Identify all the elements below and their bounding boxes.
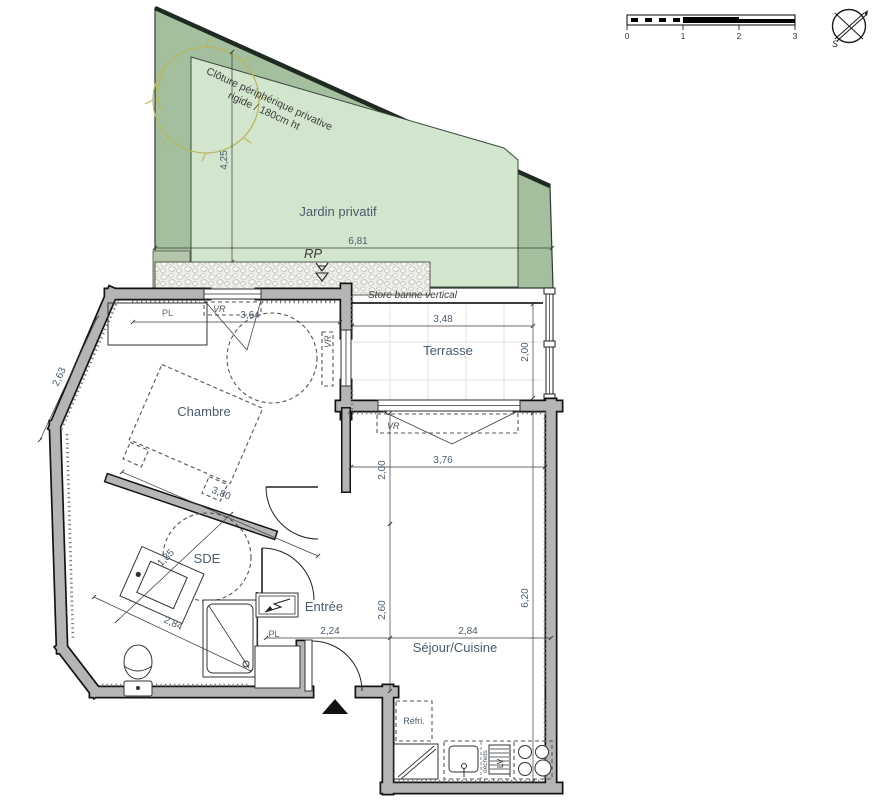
store-banne-note: Store banne vertical: [368, 290, 458, 301]
bedroom-wall-dim-line: [40, 318, 97, 440]
entrance-marker-triangle: [322, 699, 348, 714]
entry-width-dim: 2,24: [320, 626, 340, 637]
bedroom-diag-dim-line: [122, 472, 318, 556]
floor-plan-drawing: Clôture périphérique privative rigide / …: [0, 0, 879, 800]
waste-label: déchets: [482, 749, 489, 773]
entry-area: Entrée PL 2,60 2,24: [255, 524, 390, 691]
entry-label: Entrée: [305, 599, 343, 614]
toilet: [124, 645, 152, 696]
terrace-depth-dim: 2,00: [520, 342, 531, 362]
rp-label: RP: [304, 246, 322, 261]
scale-tick-1: 1: [681, 31, 686, 41]
terrace-width-dim: 3,48: [433, 314, 453, 325]
insulation-dots: [61, 296, 548, 781]
entry-closet-label: PL: [268, 629, 279, 639]
entrance-door-arc: [312, 641, 362, 691]
living-label: Séjour/Cuisine: [413, 640, 498, 655]
entry-depth-dim: 2,60: [377, 600, 388, 620]
living-height-dim: 6,20: [520, 588, 531, 608]
living-vr-label: VR: [387, 421, 400, 431]
electrical-panel-icon: [256, 593, 298, 617]
bay-window-swing: [382, 411, 518, 444]
bed-outline: [121, 364, 263, 501]
living-width-top-dim: 3,76: [433, 455, 453, 466]
entry-closet: [255, 646, 300, 688]
scale-tick-2: 2: [737, 31, 742, 41]
garden-width-dim: 6,81: [348, 236, 368, 247]
floor-plan-page: Clôture périphérique privative rigide / …: [0, 0, 879, 800]
garden-height-dim: 4,25: [219, 150, 230, 170]
inner-wall-fill: [110, 412, 346, 534]
entrance-door-leaf: [305, 640, 312, 691]
kitchen-counter: [394, 744, 438, 779]
shower: [203, 600, 257, 677]
bedroom-terrace-vr-label: VR: [323, 335, 333, 348]
scale-tick-0: 0: [625, 31, 630, 41]
walls: [55, 289, 557, 789]
dishwasher-label: LV: [496, 758, 505, 768]
bedroom-closet-label: PL: [162, 308, 173, 318]
living-area: Séjour/Cuisine 2,00 3,76 6,20 2,84 Réfri…: [351, 413, 552, 781]
living-depth-top-dim: 2,00: [377, 460, 388, 480]
garden-label: Jardin privatif: [299, 204, 377, 219]
bathroom-label: SDE: [194, 551, 221, 566]
fridge-label: Réfri.: [403, 716, 425, 726]
compass-south-label: S: [832, 39, 838, 49]
bedroom-turning-circle: [227, 313, 317, 403]
living-width-bottom-dim: 2,84: [458, 626, 478, 637]
outer-wall-fill: [55, 289, 557, 789]
bedroom-label: Chambre: [177, 404, 230, 419]
dishwasher: LV: [489, 745, 510, 774]
bedroom-closet: [108, 303, 207, 345]
scale-tick-3: 3: [793, 31, 798, 41]
terrace-railing: [544, 288, 555, 400]
scale-bar: 0 1 2 3: [625, 15, 798, 41]
north-compass-icon: S: [832, 10, 868, 50]
terrace-area: Store banne vertical Terrasse 3,48 2,00: [352, 288, 555, 400]
terrace-label: Terrasse: [423, 343, 473, 358]
outer-wall-outline: [55, 289, 557, 789]
bathroom-door-arc: [262, 548, 314, 600]
bathroom-area: SDE 1,85 2,84: [94, 513, 257, 696]
bedroom-window-dim: 3,64: [240, 310, 260, 321]
garden-area: Clôture périphérique privative rigide / …: [145, 8, 553, 299]
